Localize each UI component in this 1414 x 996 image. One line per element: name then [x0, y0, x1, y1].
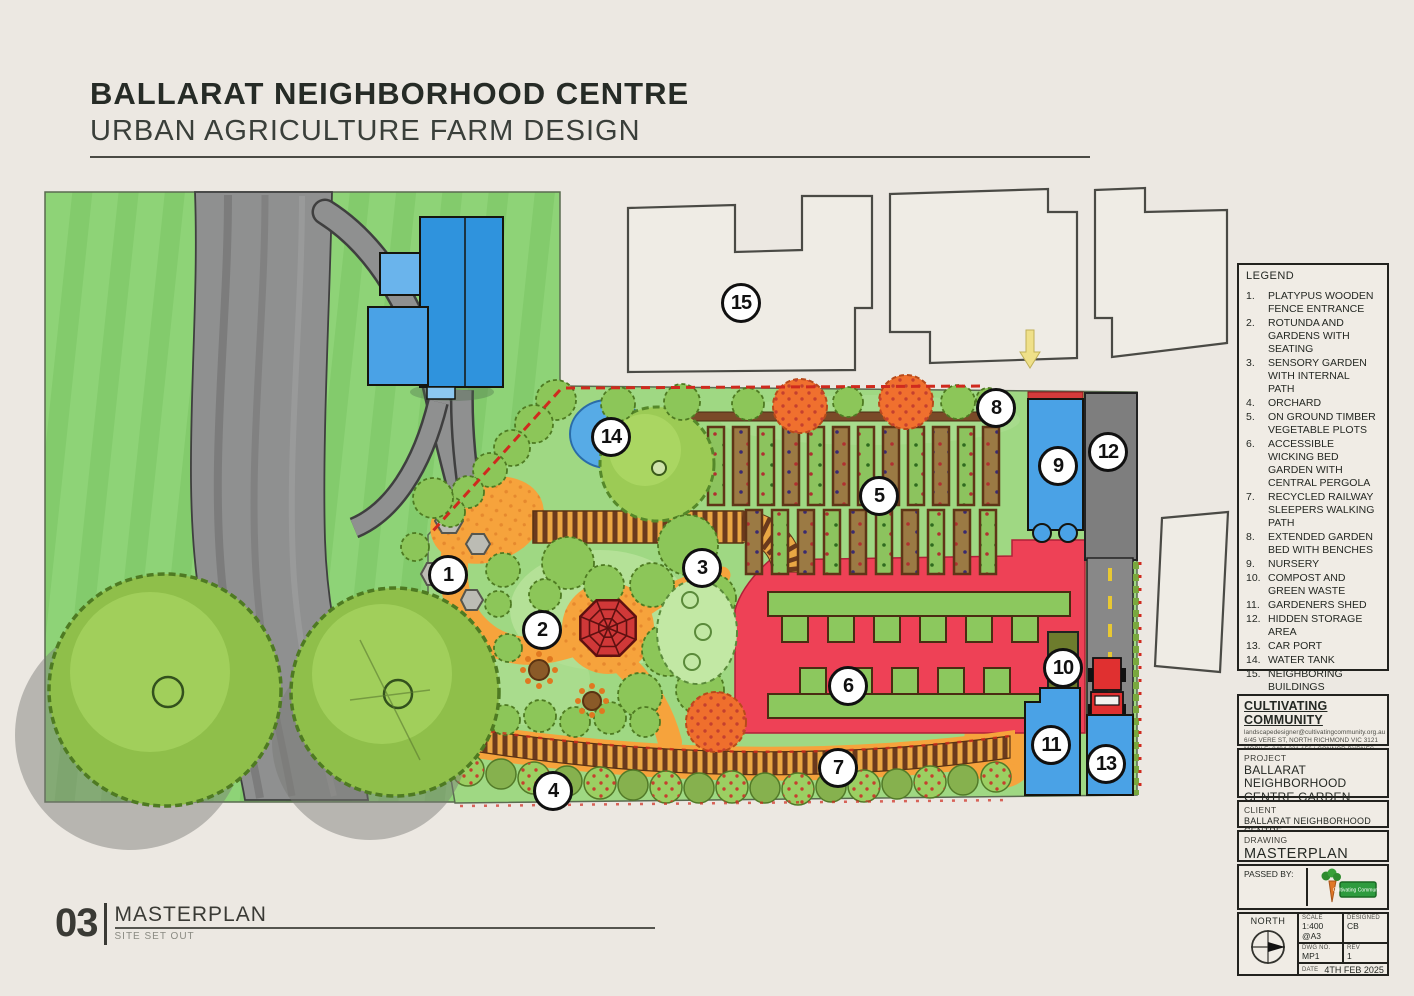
date-cell: DATE 4TH FEB 2025 — [1299, 964, 1387, 976]
legend-item: 13.CAR PORT — [1246, 640, 1383, 653]
plan-marker-11: 11 — [1031, 725, 1071, 765]
plan-marker-8: 8 — [976, 388, 1016, 428]
client-box: CLIENT BALLARAT NEIGHBORHOOD CENTRE — [1237, 800, 1389, 828]
plan-marker-14: 14 — [591, 417, 631, 457]
legend-item: 8.EXTENDED GARDEN BED WITH BENCHES — [1246, 531, 1383, 557]
company-name: CULTIVATING COMMUNITY — [1244, 699, 1382, 727]
designed-cell: DESIGNED CB — [1344, 914, 1387, 942]
legend-item: 6.ACCESSIBLE WICKING BED GARDEN WITH CEN… — [1246, 438, 1383, 490]
company-address: 6/45 VERE ST, NORTH RICHMOND VIC 3121 — [1244, 737, 1382, 744]
legend-item: 3.SENSORY GARDEN WITH INTERNAL PATH — [1246, 357, 1383, 396]
passed-by-box: PASSED BY: Cultivating Community — [1237, 864, 1389, 910]
plan-marker-7: 7 — [818, 748, 858, 788]
plan-marker-15: 15 — [721, 283, 761, 323]
divider — [104, 903, 107, 945]
company-logo: Cultivating Community — [1308, 868, 1387, 906]
legend-list: 1.PLATYPUS WOODEN FENCE ENTRANCE 2.ROTUN… — [1246, 290, 1383, 694]
company-box: CULTIVATING COMMUNITY landscapedesigner@… — [1237, 694, 1389, 746]
drawing-number-label: 03 MASTERPLAN SITE SET OUT — [55, 903, 655, 945]
north-arrow-icon — [1247, 926, 1289, 968]
page-title: BALLARAT NEIGHBORHOOD CENTRE — [90, 76, 1100, 112]
hidden-storage-area — [1085, 393, 1137, 560]
drawing-subtitle: SITE SET OUT — [115, 931, 655, 942]
legend-item: 4.ORCHARD — [1246, 397, 1383, 410]
north-label: NORTH — [1239, 916, 1297, 926]
legend-item: 2.ROTUNDA AND GARDENS WITH SEATING — [1246, 317, 1383, 356]
legend-item: 14.WATER TANK — [1246, 654, 1383, 667]
legend-panel: LEGEND 1.PLATYPUS WOODEN FENCE ENTRANCE … — [1237, 263, 1389, 671]
sheet-header: BALLARAT NEIGHBORHOOD CENTRE URBAN AGRIC… — [90, 76, 1100, 158]
plan-marker-1: 1 — [428, 555, 468, 595]
plan-marker-3: 3 — [682, 548, 722, 588]
legend-item: 12.HIDDEN STORAGE AREA — [1246, 613, 1383, 639]
legend-item: 1.PLATYPUS WOODEN FENCE ENTRANCE — [1246, 290, 1383, 316]
svg-text:Cultivating Community: Cultivating Community — [1332, 888, 1378, 894]
drawing-title-underline — [115, 927, 655, 929]
plan-marker-9: 9 — [1038, 446, 1078, 486]
legend-title: LEGEND — [1246, 270, 1383, 282]
legend-item: 15.NEIGHBORING BUILDINGS — [1246, 668, 1383, 694]
masterplan-sheet: BALLARAT NEIGHBORHOOD CENTRE URBAN AGRIC… — [0, 0, 1414, 996]
title-block: CULTIVATING COMMUNITY landscapedesigner@… — [1237, 694, 1389, 978]
dwgno-cell: DWG NO. MP1 — [1299, 944, 1344, 962]
company-email: landscapedesigner@cultivatingcommunity.o… — [1244, 729, 1382, 736]
info-grid-box: NORTH SCALE 1:400 @A3 DESIGNED CB — [1237, 912, 1389, 976]
plan-marker-6: 6 — [828, 666, 868, 706]
passed-by-label: PASSED BY: — [1244, 868, 1308, 906]
plan-marker-12: 12 — [1088, 432, 1128, 472]
rev-cell: REV 1 — [1344, 944, 1387, 962]
page-subtitle: URBAN AGRICULTURE FARM DESIGN — [90, 115, 1100, 148]
drawing-number: 03 — [55, 903, 98, 943]
plan-marker-2: 2 — [522, 610, 562, 650]
title-underline — [90, 156, 1090, 158]
plan-marker-5: 5 — [859, 476, 899, 516]
plan-marker-13: 13 — [1086, 744, 1126, 784]
plan-marker-10: 10 — [1043, 648, 1083, 688]
legend-item: 7.RECYCLED RAILWAY SLEEPERS WALKING PATH — [1246, 491, 1383, 530]
drawing-value: MASTERPLAN — [1244, 846, 1382, 862]
drawing-box: DRAWING MASTERPLAN — [1237, 830, 1389, 862]
plan-marker-4: 4 — [533, 771, 573, 811]
cultivating-community-logo-icon: Cultivating Community — [1317, 868, 1379, 906]
scale-cell: SCALE 1:400 @A3 — [1299, 914, 1344, 942]
north-cell: NORTH — [1239, 914, 1299, 974]
legend-item: 10.COMPOST AND GREEN WASTE — [1246, 572, 1383, 598]
legend-item: 11.GARDENERS SHED — [1246, 599, 1383, 612]
drawing-title: MASTERPLAN — [115, 905, 655, 925]
project-box: PROJECT BALLARAT NEIGHBORHOOD CENTRE GAR… — [1237, 748, 1389, 798]
rotunda — [580, 600, 635, 655]
legend-item: 5.ON GROUND TIMBER VEGETABLE PLOTS — [1246, 411, 1383, 437]
legend-item: 9.NURSERY — [1246, 558, 1383, 571]
